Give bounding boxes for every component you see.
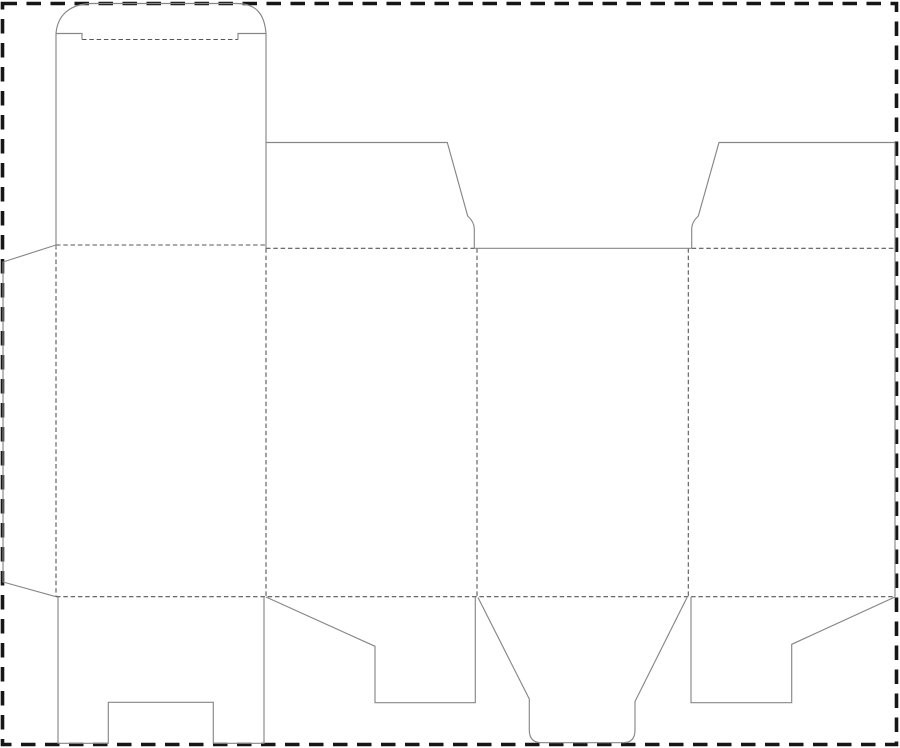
tuck-shoulder-left (56, 34, 82, 40)
bottom-flap-panel-1-notched (58, 597, 264, 743)
bottom-tuck-flap-panel-3 (478, 598, 687, 743)
page-border-dashed (3, 4, 897, 745)
dieline-page (0, 0, 900, 748)
tuck-lid-outline (56, 4, 266, 249)
tuck-shoulder-right (238, 34, 266, 40)
glue-flap-outline (3, 245, 56, 597)
cut-lines-group (3, 4, 895, 744)
fold-lines-group (56, 40, 895, 597)
dieline-canvas (0, 0, 900, 748)
bottom-dust-flap-panel-4 (691, 597, 895, 703)
top-dust-flap-right (692, 143, 895, 249)
bottom-dust-flap-panel-2 (266, 597, 475, 703)
top-dust-flap-left (266, 143, 474, 249)
